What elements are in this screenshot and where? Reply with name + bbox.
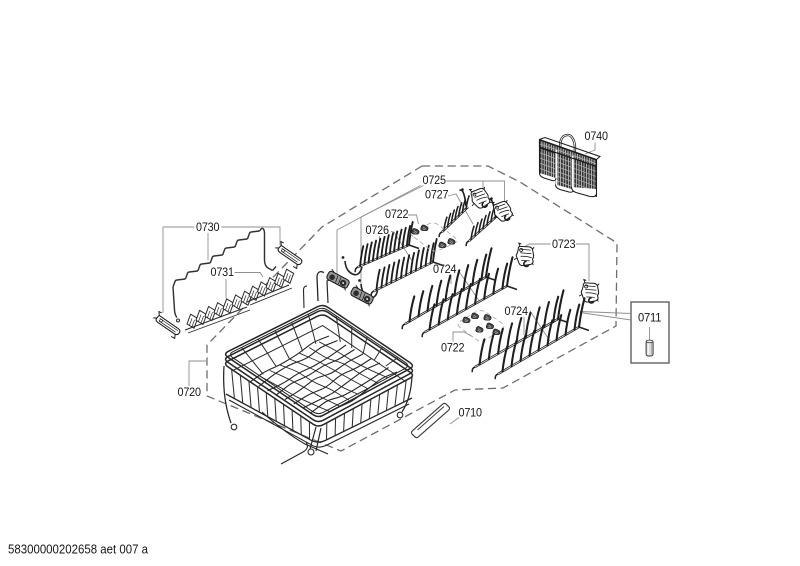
svg-text:0723: 0723	[552, 238, 575, 251]
svg-text:0725: 0725	[423, 174, 446, 187]
svg-text:0722: 0722	[441, 342, 464, 355]
svg-text:0740: 0740	[585, 130, 608, 143]
svg-text:0726: 0726	[366, 224, 389, 237]
svg-text:0720: 0720	[178, 386, 201, 399]
svg-text:58300000202658 aet 007 a: 58300000202658 aet 007 a	[8, 542, 149, 557]
svg-text:0724: 0724	[505, 305, 529, 318]
svg-text:0722: 0722	[385, 208, 408, 221]
svg-text:0711: 0711	[638, 312, 661, 325]
svg-text:0727: 0727	[425, 189, 448, 202]
svg-text:0724: 0724	[433, 263, 457, 276]
svg-text:0710: 0710	[459, 407, 482, 420]
svg-text:0730: 0730	[196, 221, 219, 234]
svg-text:0731: 0731	[211, 266, 234, 279]
